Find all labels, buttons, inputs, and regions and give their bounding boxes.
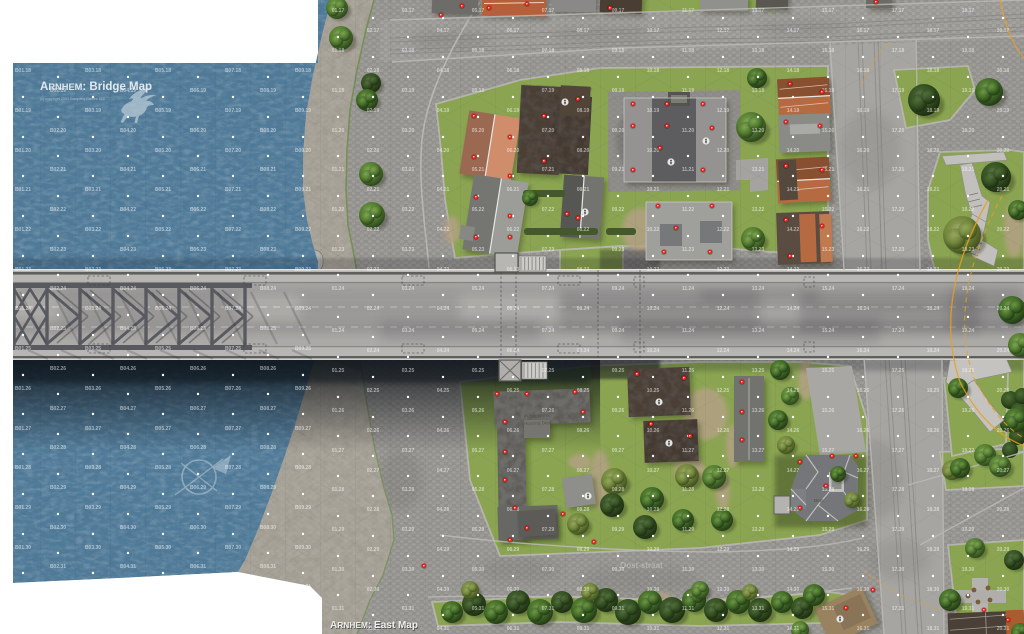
svg-text:04.29: 04.29 xyxy=(437,547,450,553)
svg-text:01.24: 01.24 xyxy=(332,286,345,292)
svg-text:B05.18: B05.18 xyxy=(155,68,171,74)
svg-text:B03.28: B03.28 xyxy=(85,465,101,471)
svg-text:B01.25: B01.25 xyxy=(15,346,31,352)
svg-text:15.28: 15.28 xyxy=(822,487,835,493)
svg-text:19.25: 19.25 xyxy=(962,368,975,374)
svg-text:04.19: 04.19 xyxy=(437,108,450,114)
svg-text:14.25: 14.25 xyxy=(787,388,800,394)
svg-text:10.24: 10.24 xyxy=(647,348,660,354)
svg-text:15.24: 15.24 xyxy=(822,328,835,334)
svg-text:20.28: 20.28 xyxy=(997,507,1010,513)
svg-text:15.30: 15.30 xyxy=(822,567,835,573)
svg-text:06.23: 06.23 xyxy=(507,267,520,273)
svg-text:07.21: 07.21 xyxy=(542,167,555,173)
svg-text:13.24: 13.24 xyxy=(752,328,765,334)
svg-text:11.24: 11.24 xyxy=(682,328,694,334)
svg-text:13.30: 13.30 xyxy=(752,567,765,573)
svg-text:06.26: 06.26 xyxy=(507,428,520,434)
svg-text:10.29: 10.29 xyxy=(647,547,660,553)
svg-text:B02.20: B02.20 xyxy=(50,128,66,134)
svg-text:B09.29: B09.29 xyxy=(295,505,311,511)
svg-text:05.17: 05.17 xyxy=(472,8,485,14)
svg-text:19.22: 19.22 xyxy=(962,207,975,213)
svg-text:07.30: 07.30 xyxy=(542,567,555,573)
svg-text:B06.23: B06.23 xyxy=(190,247,206,253)
svg-text:16.27: 16.27 xyxy=(857,468,870,474)
svg-text:20.23: 20.23 xyxy=(997,267,1010,273)
svg-text:11.19: 11.19 xyxy=(682,88,694,94)
svg-text:B02.22: B02.22 xyxy=(50,207,66,213)
svg-text:17.28: 17.28 xyxy=(892,487,905,493)
svg-text:16.31: 16.31 xyxy=(857,626,870,632)
svg-text:B05.19: B05.19 xyxy=(155,108,171,114)
svg-text:11.28: 11.28 xyxy=(682,487,694,493)
svg-text:Housing Dept: Housing Dept xyxy=(524,420,552,426)
svg-text:08.28: 08.28 xyxy=(577,507,590,513)
svg-text:20.20: 20.20 xyxy=(997,148,1010,154)
svg-text:B06.27: B06.27 xyxy=(190,406,206,412)
svg-text:B06.22: B06.22 xyxy=(190,207,206,213)
svg-text:B08.21: B08.21 xyxy=(260,167,276,173)
svg-text:01.31: 01.31 xyxy=(332,606,345,612)
svg-text:04.27: 04.27 xyxy=(437,468,450,474)
svg-text:B06.30: B06.30 xyxy=(190,525,206,531)
svg-text:09.24: 09.24 xyxy=(612,328,625,334)
svg-text:B05.27: B05.27 xyxy=(155,426,171,432)
svg-text:06.25: 06.25 xyxy=(507,388,520,394)
svg-text:B06.20: B06.20 xyxy=(190,128,206,134)
svg-text:14.23: 14.23 xyxy=(787,267,800,273)
svg-text:12.28: 12.28 xyxy=(717,507,730,513)
svg-text:B01.30: B01.30 xyxy=(15,545,31,551)
svg-text:07.18: 07.18 xyxy=(542,48,555,54)
svg-text:08.20: 08.20 xyxy=(577,148,590,154)
svg-text:04.25: 04.25 xyxy=(437,388,450,394)
svg-text:06.24: 06.24 xyxy=(507,306,520,312)
svg-text:16.17: 16.17 xyxy=(857,28,870,34)
svg-text:B01.24: B01.24 xyxy=(15,306,31,312)
svg-text:Dept.: Dept. xyxy=(814,498,825,503)
svg-text:04.24: 04.24 xyxy=(437,306,450,312)
svg-text:19.19: 19.19 xyxy=(962,88,975,94)
svg-text:09.28: 09.28 xyxy=(612,487,625,493)
svg-text:05.23: 05.23 xyxy=(472,247,485,253)
svg-text:19.24: 19.24 xyxy=(962,328,975,334)
svg-text:B01.23: B01.23 xyxy=(15,267,31,273)
svg-text:18.26: 18.26 xyxy=(927,428,940,434)
svg-text:11.31: 11.31 xyxy=(682,606,694,612)
svg-text:20.25: 20.25 xyxy=(997,388,1010,394)
svg-text:15.27: 15.27 xyxy=(822,448,835,454)
svg-text:B05.25: B05.25 xyxy=(155,346,171,352)
svg-text:12.21: 12.21 xyxy=(717,187,730,193)
svg-text:B04.29: B04.29 xyxy=(120,485,136,491)
svg-text:06.27: 06.27 xyxy=(507,468,520,474)
svg-text:06.22: 06.22 xyxy=(507,227,520,233)
svg-text:12.17: 12.17 xyxy=(717,28,730,34)
svg-text:B07.23: B07.23 xyxy=(225,267,241,273)
svg-text:06.18: 06.18 xyxy=(507,68,520,74)
svg-text:09.25: 09.25 xyxy=(612,368,625,374)
svg-text:03.23: 03.23 xyxy=(402,247,415,253)
svg-text:B06.21: B06.21 xyxy=(190,167,206,173)
svg-text:18.27: 18.27 xyxy=(927,468,940,474)
svg-text:17.24: 17.24 xyxy=(892,286,905,292)
svg-text:01.26: 01.26 xyxy=(332,408,345,414)
svg-text:10.31: 10.31 xyxy=(647,626,660,632)
svg-text:B07.24: B07.24 xyxy=(225,306,241,312)
svg-text:B07.28: B07.28 xyxy=(225,465,241,471)
svg-text:B01.21: B01.21 xyxy=(15,187,31,193)
svg-text:10.22: 10.22 xyxy=(647,227,660,233)
svg-text:B05.23: B05.23 xyxy=(155,267,171,273)
svg-text:18.20: 18.20 xyxy=(927,148,940,154)
svg-text:20.17: 20.17 xyxy=(997,28,1010,34)
svg-text:02.22: 02.22 xyxy=(367,227,380,233)
svg-text:20.24: 20.24 xyxy=(997,306,1010,312)
svg-text:16.20: 16.20 xyxy=(857,148,870,154)
svg-text:04.22: 04.22 xyxy=(437,227,450,233)
svg-text:15.25: 15.25 xyxy=(822,368,835,374)
svg-text:B08.26: B08.26 xyxy=(260,366,276,372)
svg-text:03.18: 03.18 xyxy=(402,48,415,54)
svg-text:14.18: 14.18 xyxy=(787,68,800,74)
svg-text:05.29: 05.29 xyxy=(472,527,485,533)
svg-text:B04.20: B04.20 xyxy=(120,128,136,134)
svg-text:B07.20: B07.20 xyxy=(225,148,241,154)
svg-text:12.25: 12.25 xyxy=(717,388,730,394)
svg-text:02.18: 02.18 xyxy=(367,68,380,74)
svg-text:B08.24: B08.24 xyxy=(260,286,276,292)
svg-text:14.26: 14.26 xyxy=(787,428,800,434)
svg-text:Oost-straat: Oost-straat xyxy=(620,561,663,570)
svg-text:14.24: 14.24 xyxy=(787,348,800,354)
svg-text:14.24: 14.24 xyxy=(787,306,800,312)
svg-text:05.30: 05.30 xyxy=(472,567,485,573)
svg-text:07.29: 07.29 xyxy=(542,527,555,533)
svg-text:13.28: 13.28 xyxy=(752,487,765,493)
svg-text:10.26: 10.26 xyxy=(647,428,660,434)
svg-text:07.20: 07.20 xyxy=(542,128,555,134)
svg-text:20.18: 20.18 xyxy=(997,68,1010,74)
svg-text:08.17: 08.17 xyxy=(577,28,590,34)
svg-text:B02.21: B02.21 xyxy=(50,167,66,173)
svg-text:13.20: 13.20 xyxy=(752,128,765,134)
svg-text:14.27: 14.27 xyxy=(787,468,800,474)
svg-text:B08.27: B08.27 xyxy=(260,406,276,412)
svg-text:06.30: 06.30 xyxy=(507,587,520,593)
svg-text:B06.29: B06.29 xyxy=(190,485,206,491)
svg-text:19.26: 19.26 xyxy=(962,408,975,414)
svg-text:B01.18: B01.18 xyxy=(15,68,31,74)
svg-text:12.24: 12.24 xyxy=(717,306,730,312)
svg-text:19.27: 19.27 xyxy=(962,448,975,454)
svg-text:B03.19: B03.19 xyxy=(85,108,101,114)
svg-text:10.24: 10.24 xyxy=(647,306,660,312)
svg-text:01.27: 01.27 xyxy=(332,448,345,454)
svg-text:B05.21: B05.21 xyxy=(155,187,171,193)
svg-text:09.19: 09.19 xyxy=(612,88,625,94)
svg-text:16.30: 16.30 xyxy=(857,587,870,593)
svg-text:16.25: 16.25 xyxy=(857,388,870,394)
svg-text:B08.30: B08.30 xyxy=(260,525,276,531)
svg-text:09.22: 09.22 xyxy=(612,207,625,213)
svg-text:03.28: 03.28 xyxy=(402,487,415,493)
svg-text:B06.25: B06.25 xyxy=(190,326,206,332)
svg-text:15.29: 15.29 xyxy=(822,527,835,533)
svg-text:07.23: 07.23 xyxy=(542,247,555,253)
svg-text:B09.23: B09.23 xyxy=(295,267,311,273)
svg-text:13.24: 13.24 xyxy=(752,286,765,292)
svg-text:04.28: 04.28 xyxy=(437,507,450,513)
svg-text:02.20: 02.20 xyxy=(367,148,380,154)
svg-text:01.19: 01.19 xyxy=(332,88,345,94)
svg-text:B07.18: B07.18 xyxy=(225,68,241,74)
svg-text:20.26: 20.26 xyxy=(997,428,1010,434)
svg-text:18.28: 18.28 xyxy=(927,507,940,513)
svg-text:13.17: 13.17 xyxy=(752,8,765,14)
svg-text:B07.29: B07.29 xyxy=(225,505,241,511)
svg-text:B04.25: B04.25 xyxy=(120,326,136,332)
svg-text:04.17: 04.17 xyxy=(437,28,450,34)
svg-text:B07.25: B07.25 xyxy=(225,346,241,352)
svg-text:B03.29: B03.29 xyxy=(85,505,101,511)
svg-text:04.18: 04.18 xyxy=(437,68,450,74)
svg-text:07.26: 07.26 xyxy=(542,408,555,414)
svg-text:14.22: 14.22 xyxy=(787,227,800,233)
svg-text:B01.29: B01.29 xyxy=(15,505,31,511)
svg-text:B04.23: B04.23 xyxy=(120,247,136,253)
svg-text:03.20: 03.20 xyxy=(402,128,415,134)
svg-text:20.21: 20.21 xyxy=(997,187,1010,193)
svg-text:02.17: 02.17 xyxy=(367,28,380,34)
svg-text:03.21: 03.21 xyxy=(402,167,415,173)
svg-text:B02.26: B02.26 xyxy=(50,366,66,372)
svg-text:11.30: 11.30 xyxy=(682,567,694,573)
svg-text:06.20: 06.20 xyxy=(507,148,520,154)
svg-text:18.30: 18.30 xyxy=(927,587,940,593)
svg-text:15.31: 15.31 xyxy=(822,606,835,612)
svg-text:B09.19: B09.19 xyxy=(295,108,311,114)
svg-text:07.22: 07.22 xyxy=(542,207,555,213)
svg-text:12.20: 12.20 xyxy=(717,148,730,154)
svg-text:B02.23: B02.23 xyxy=(50,247,66,253)
svg-text:B04.22: B04.22 xyxy=(120,207,136,213)
svg-text:04.24: 04.24 xyxy=(437,348,450,354)
svg-text:16.21: 16.21 xyxy=(857,187,870,193)
svg-text:20.24: 20.24 xyxy=(997,348,1010,354)
svg-text:08.23: 08.23 xyxy=(577,267,590,273)
svg-text:01.30: 01.30 xyxy=(332,567,345,573)
svg-text:03.27: 03.27 xyxy=(402,448,415,454)
svg-text:03.26: 03.26 xyxy=(402,408,415,414)
svg-text:16.29: 16.29 xyxy=(857,547,870,553)
svg-text:B01.26: B01.26 xyxy=(15,386,31,392)
svg-text:B09.30: B09.30 xyxy=(295,545,311,551)
svg-text:05.19: 05.19 xyxy=(472,88,485,94)
svg-text:11.20: 11.20 xyxy=(682,128,694,134)
svg-text:01.20: 01.20 xyxy=(332,128,345,134)
svg-text:B03.30: B03.30 xyxy=(85,545,101,551)
svg-text:18.29: 18.29 xyxy=(927,547,940,553)
svg-text:B09.28: B09.28 xyxy=(295,465,311,471)
svg-text:03.19: 03.19 xyxy=(402,88,415,94)
svg-text:18.21: 18.21 xyxy=(927,187,940,193)
svg-text:08.19: 08.19 xyxy=(577,108,590,114)
svg-text:17.26: 17.26 xyxy=(892,408,905,414)
svg-text:18.31: 18.31 xyxy=(927,626,940,632)
svg-text:15.22: 15.22 xyxy=(822,207,835,213)
svg-text:01.18: 01.18 xyxy=(332,48,345,54)
svg-text:B09.20: B09.20 xyxy=(295,148,311,154)
svg-text:B07.27: B07.27 xyxy=(225,426,241,432)
svg-text:10.30: 10.30 xyxy=(647,587,660,593)
svg-text:05.18: 05.18 xyxy=(472,48,485,54)
svg-text:03.22: 03.22 xyxy=(402,207,415,213)
svg-text:19.23: 19.23 xyxy=(962,247,975,253)
svg-text:09.27: 09.27 xyxy=(612,448,625,454)
svg-text:09.20: 09.20 xyxy=(612,128,625,134)
svg-text:02.25: 02.25 xyxy=(367,388,380,394)
svg-text:01.22: 01.22 xyxy=(332,207,345,213)
svg-text:13.31: 13.31 xyxy=(752,606,765,612)
svg-text:19.24: 19.24 xyxy=(962,286,975,292)
svg-text:04.21: 04.21 xyxy=(437,187,450,193)
svg-text:17.30: 17.30 xyxy=(892,567,905,573)
svg-text:08.22: 08.22 xyxy=(577,227,590,233)
svg-text:08.27: 08.27 xyxy=(577,468,590,474)
svg-text:11.23: 11.23 xyxy=(682,247,694,253)
svg-text:B02.27: B02.27 xyxy=(50,406,66,412)
svg-text:17.24: 17.24 xyxy=(892,328,905,334)
svg-text:03.31: 03.31 xyxy=(402,606,415,612)
svg-text:13.25: 13.25 xyxy=(752,368,765,374)
svg-text:08.26: 08.26 xyxy=(577,428,590,434)
svg-text:20.27: 20.27 xyxy=(997,468,1010,474)
svg-text:15.18: 15.18 xyxy=(822,48,835,54)
svg-text:05.21: 05.21 xyxy=(472,167,485,173)
svg-text:ARNHEM: East Map: ARNHEM: East Map xyxy=(330,620,418,631)
svg-text:11.21: 11.21 xyxy=(682,167,694,173)
svg-text:B03.25: B03.25 xyxy=(85,346,101,352)
svg-text:14.30: 14.30 xyxy=(787,587,800,593)
svg-text:03.25: 03.25 xyxy=(402,368,415,374)
svg-text:07.27: 07.27 xyxy=(542,448,555,454)
svg-text:05.20: 05.20 xyxy=(472,128,485,134)
svg-text:B06.26: B06.26 xyxy=(190,366,206,372)
svg-text:14.31: 14.31 xyxy=(787,626,800,632)
svg-text:B09.18: B09.18 xyxy=(295,68,311,74)
svg-text:B07.30: B07.30 xyxy=(225,545,241,551)
svg-text:02.27: 02.27 xyxy=(367,468,380,474)
svg-text:18.17: 18.17 xyxy=(927,28,940,34)
svg-text:B07.21: B07.21 xyxy=(225,187,241,193)
svg-text:08.29: 08.29 xyxy=(577,547,590,553)
svg-text:08.18: 08.18 xyxy=(577,68,590,74)
svg-text:B05.20: B05.20 xyxy=(155,148,171,154)
svg-text:17.22: 17.22 xyxy=(892,207,905,213)
svg-text:B04.30: B04.30 xyxy=(120,525,136,531)
svg-text:14.17: 14.17 xyxy=(787,28,800,34)
svg-text:B02.25: B02.25 xyxy=(50,326,66,332)
svg-text:B01.28: B01.28 xyxy=(15,465,31,471)
svg-text:19.30: 19.30 xyxy=(962,567,975,573)
svg-text:13.23: 13.23 xyxy=(752,247,765,253)
svg-text:08.30: 08.30 xyxy=(577,587,590,593)
svg-text:04.23: 04.23 xyxy=(437,267,450,273)
svg-text:14.29: 14.29 xyxy=(787,547,800,553)
svg-text:B08.22: B08.22 xyxy=(260,207,276,213)
svg-text:12.24: 12.24 xyxy=(717,348,730,354)
svg-text:14.19: 14.19 xyxy=(787,108,800,114)
svg-text:12.31: 12.31 xyxy=(717,626,730,632)
svg-text:07.19: 07.19 xyxy=(542,88,555,94)
svg-text:08.24: 08.24 xyxy=(577,306,590,312)
svg-text:B05.26: B05.26 xyxy=(155,386,171,392)
svg-text:11.26: 11.26 xyxy=(682,408,694,414)
svg-text:10.19: 10.19 xyxy=(647,108,660,114)
svg-text:07.24: 07.24 xyxy=(542,328,555,334)
svg-text:10.23: 10.23 xyxy=(647,267,660,273)
svg-text:05.24: 05.24 xyxy=(472,328,485,334)
svg-text:05.26: 05.26 xyxy=(472,408,485,414)
svg-text:07.28: 07.28 xyxy=(542,487,555,493)
svg-text:B02.29: B02.29 xyxy=(50,485,66,491)
svg-text:B09.25: B09.25 xyxy=(295,346,311,352)
svg-text:17.29: 17.29 xyxy=(892,527,905,533)
svg-text:B02.30: B02.30 xyxy=(50,525,66,531)
svg-text:19.28: 19.28 xyxy=(962,487,975,493)
svg-text:11.25: 11.25 xyxy=(682,368,694,374)
svg-text:17.19: 17.19 xyxy=(892,88,905,94)
svg-text:19.20: 19.20 xyxy=(962,128,975,134)
svg-text:05.22: 05.22 xyxy=(472,207,485,213)
svg-text:13.22: 13.22 xyxy=(752,207,765,213)
svg-text:13.26: 13.26 xyxy=(752,408,765,414)
svg-text:B03.27: B03.27 xyxy=(85,426,101,432)
svg-text:10.17: 10.17 xyxy=(647,28,660,34)
svg-text:01.29: 01.29 xyxy=(332,527,345,533)
svg-text:18.24: 18.24 xyxy=(927,348,940,354)
svg-text:B09.22: B09.22 xyxy=(295,227,311,233)
svg-text:19.21: 19.21 xyxy=(962,167,975,173)
svg-text:05.27: 05.27 xyxy=(472,448,485,454)
svg-text:B03.20: B03.20 xyxy=(85,148,101,154)
svg-text:B01.22: B01.22 xyxy=(15,227,31,233)
svg-text:08.21: 08.21 xyxy=(577,187,590,193)
svg-text:14.21: 14.21 xyxy=(787,187,800,193)
svg-text:B04.31: B04.31 xyxy=(120,564,136,570)
svg-text:01.24: 01.24 xyxy=(332,328,345,334)
svg-text:B02.31: B02.31 xyxy=(50,564,66,570)
svg-text:B04.19: B04.19 xyxy=(120,88,136,94)
svg-text:B04.27: B04.27 xyxy=(120,406,136,412)
svg-text:B05.24: B05.24 xyxy=(155,306,171,312)
svg-text:06.17: 06.17 xyxy=(507,28,520,34)
svg-text:19.18: 19.18 xyxy=(962,48,975,54)
svg-text:02.29: 02.29 xyxy=(367,547,380,553)
svg-text:B05.30: B05.30 xyxy=(155,545,171,551)
svg-text:B06.24: B06.24 xyxy=(190,286,206,292)
svg-text:12.19: 12.19 xyxy=(717,108,730,114)
svg-text:09.17: 09.17 xyxy=(612,8,625,14)
svg-text:B08.20: B08.20 xyxy=(260,128,276,134)
svg-text:B03.18: B03.18 xyxy=(85,68,101,74)
svg-text:09.24: 09.24 xyxy=(612,286,625,292)
svg-text:20.22: 20.22 xyxy=(997,227,1010,233)
svg-text:18.22: 18.22 xyxy=(927,227,940,233)
svg-text:B05.22: B05.22 xyxy=(155,227,171,233)
